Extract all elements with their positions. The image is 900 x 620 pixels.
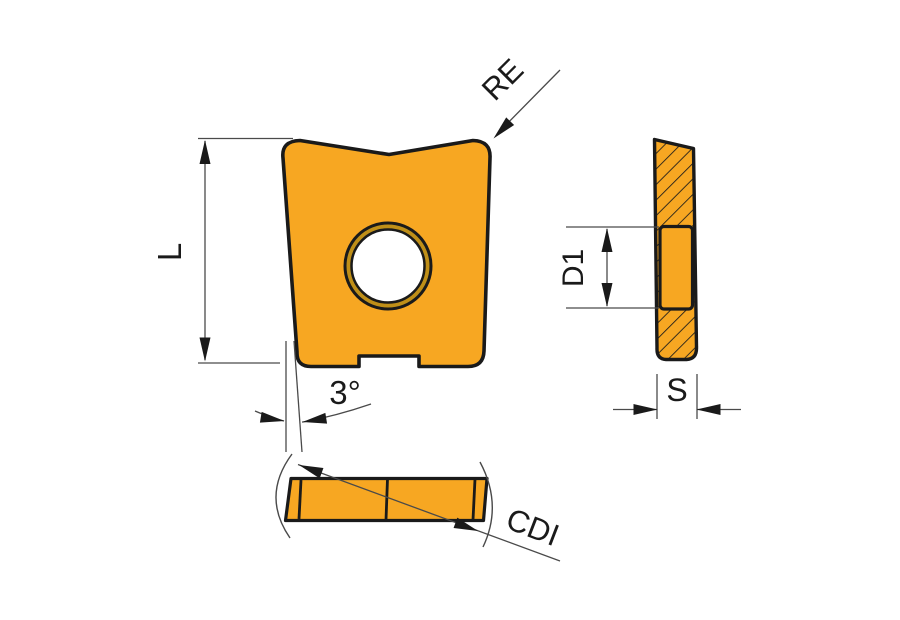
l-arrow-bottom bbox=[200, 338, 211, 362]
d1-arrow-bottom bbox=[602, 283, 613, 307]
front-view bbox=[283, 141, 490, 367]
cdi-arrow-top-left bbox=[297, 460, 323, 479]
taper-angle-label: 3° bbox=[329, 374, 361, 411]
s-arrow-left bbox=[634, 404, 658, 415]
d1-arrow-top bbox=[602, 228, 613, 252]
taper-arrow-left bbox=[260, 412, 285, 427]
l-dimension bbox=[198, 139, 293, 364]
bottom-view-divider-right bbox=[473, 479, 475, 520]
bottom-view-divider-left bbox=[299, 480, 301, 519]
cdi-label: CDI bbox=[502, 501, 564, 553]
center-hole bbox=[352, 230, 425, 303]
side-view-hole-bore bbox=[660, 227, 693, 310]
insert-technical-drawing: L RE 3° D1 S bbox=[0, 0, 900, 620]
d1-label: D1 bbox=[557, 249, 590, 287]
s-label: S bbox=[666, 372, 687, 408]
taper-arrow-right bbox=[302, 413, 327, 428]
bottom-view-divider-middle bbox=[386, 479, 388, 520]
l-label: L bbox=[151, 243, 188, 261]
l-arrow-top bbox=[200, 140, 211, 164]
re-label: RE bbox=[475, 52, 530, 107]
drawing-canvas: L RE 3° D1 S bbox=[0, 0, 900, 620]
side-view bbox=[655, 140, 697, 360]
s-arrow-right bbox=[697, 404, 721, 415]
